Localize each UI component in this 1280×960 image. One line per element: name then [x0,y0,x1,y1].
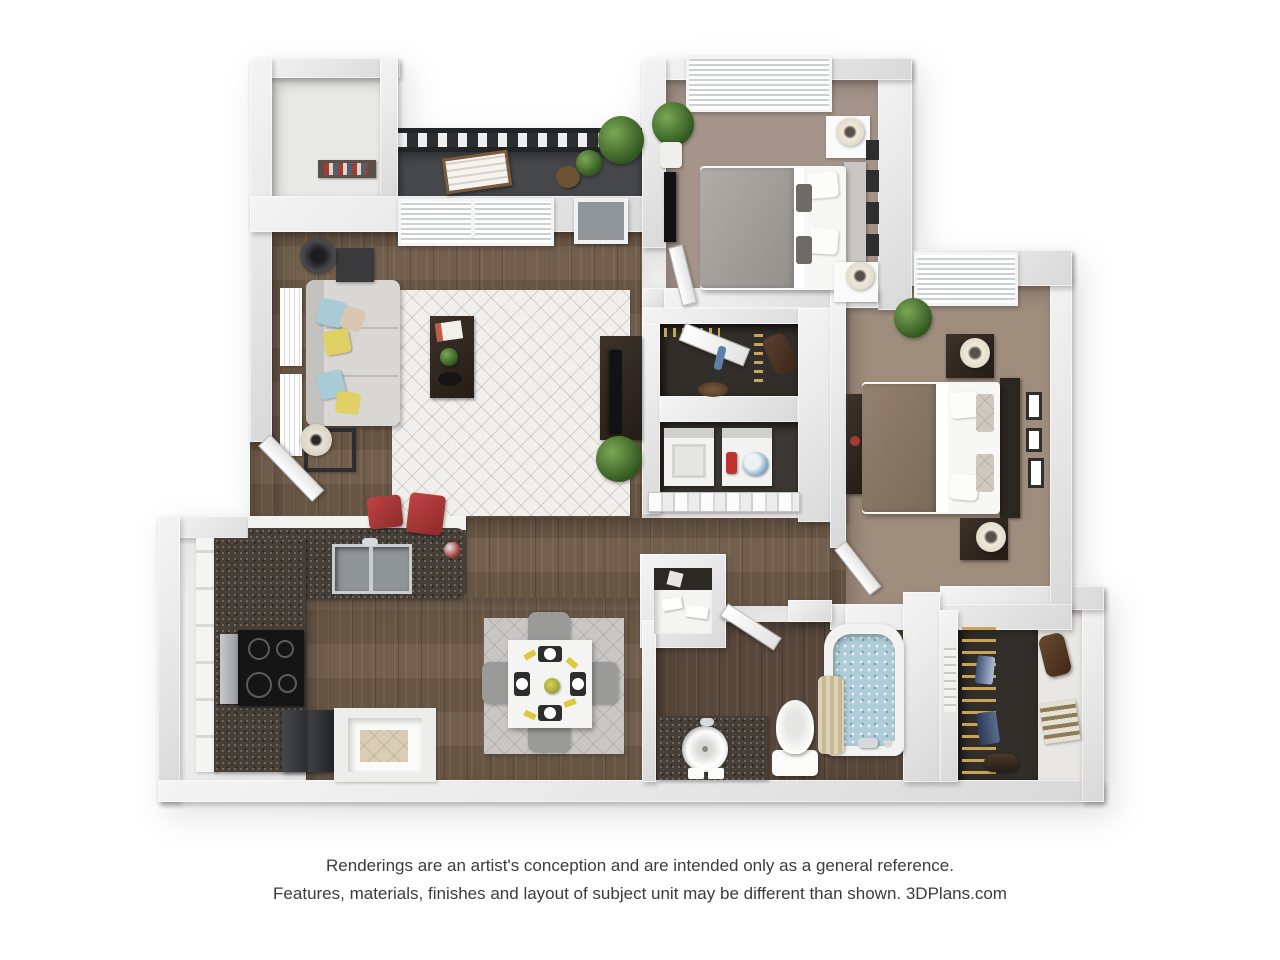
bedroom2-window [914,252,1018,306]
hallway-floor [420,518,832,606]
wall-closet-laundry-divider [660,396,798,422]
bar-stool-2 [406,492,447,536]
refrigerator [282,710,334,772]
wall-bottom [158,780,1104,802]
wall-bedroom2-right [1050,250,1072,610]
shower-curtain [818,676,844,754]
wall-bedroom2-left [830,286,846,548]
coat-closet-hat [698,382,728,397]
bedroom1-pillow-accent-1 [796,184,812,212]
wall-storage-balcony-divider [380,58,398,198]
wall-storage-top [250,58,400,78]
bathtub-faucet [858,738,878,748]
bedroom1-window [686,56,832,112]
bedroom1-tv [664,172,676,242]
vanity-towel-2 [708,768,724,779]
bedroom2-dresser-accent [850,436,860,446]
walkin-shoe-rack [1039,700,1080,745]
bedroom2-sheet-fold [936,384,948,512]
bath-niche-shelf-top [654,568,712,590]
living-room-window [398,198,554,246]
bedroom1-art-frames [866,140,879,256]
plate-right [572,678,584,690]
bedroom2-pillow-white-1 [949,391,979,419]
side-table-top [336,248,374,282]
bedroom1-pillow-accent-2 [796,236,812,264]
kitchen-sink-divider [369,546,373,592]
disclaimer-line-1: Renderings are an artist's conception an… [0,852,1280,880]
vanity-faucet [700,718,714,726]
bedroom1-duvet [700,168,796,288]
bedroom2-plant [894,298,932,338]
disclaimer: Renderings are an artist's conception an… [0,852,1280,908]
wall-art-panel-1 [280,288,302,366]
stove-burner-1 [248,638,270,660]
wall-coat-closet-left [642,324,660,514]
floorplan-3d [0,0,1280,960]
tv-living [610,350,622,434]
bedroom2-duvet [862,384,938,512]
balcony-side-table [556,166,580,188]
bedroom2-lamp-bottom [976,522,1006,552]
floorplan-page: Renderings are an artist's conception an… [0,0,1280,960]
bedroom1-plant-pot [660,142,682,168]
balcony-door [574,198,628,244]
toilet-bowl [776,700,814,754]
walkin-wire-shelf [944,648,956,712]
pantry-rug [360,730,408,762]
detergent-bottle [726,452,737,474]
living-room-window-mullion [471,200,475,238]
wall-bedroom1-right [878,58,912,310]
bedroom2-art-frame-3 [1028,458,1044,488]
bedroom2-pillow-pattern-2 [976,454,994,492]
sofa-pillow-yellow-1 [322,328,352,356]
bedroom1-plant [652,102,694,146]
bedroom2-art-frame-2 [1026,428,1042,452]
laundry-bifold-doors [648,492,800,512]
bedroom1-lamp-top [836,118,864,146]
oven-door [220,634,238,704]
wall-left-upper [250,58,272,442]
stove-burner-2 [276,640,294,658]
wall-kitchen-left [158,516,180,802]
disclaimer-line-2: Features, materials, finishes and layout… [0,880,1280,908]
walkin-duffel [984,754,1018,772]
bedroom1-lamp-bottom [846,262,874,290]
bar-stool-1 [366,494,403,529]
storage-room-floor [272,78,380,196]
wall-bath-left [642,620,656,782]
vanity-sink-drain [702,746,708,752]
kitchen-faucet [362,538,378,546]
stove-cooktop [238,630,304,706]
coffee-table-plant [440,348,458,366]
dining-centerpiece [544,678,560,694]
sofa-pillow-yellow-2 [335,390,362,415]
coffee-table-tray [438,372,462,386]
dining-chair-bottom [528,724,570,752]
walkin-hanger-rod [962,618,996,774]
storage-books [324,163,368,175]
stove-burner-4 [278,674,297,693]
walkin-clothes-navy [976,711,1000,745]
floor-lamp-cream [300,424,332,456]
dryer-control-panel [722,428,772,438]
laundry-basket [742,452,768,476]
balcony-plant-small [576,150,602,176]
stove-burner-3 [246,672,272,698]
wall-bath-top-east [788,600,832,622]
counter-kettle [444,542,460,558]
floor-lamp-dark [300,238,336,274]
plate-left [516,678,528,690]
balcony-plant [598,116,644,164]
plate-bottom [544,707,556,719]
bedroom2-art-frame-1 [1026,392,1042,420]
living-room-rug [392,290,630,516]
coffee-table-magazine [435,320,463,341]
coat-closet-hangers-right [754,330,763,382]
washer-control-panel [664,428,714,438]
washer-door [672,444,706,478]
wall-bedroom1-west-stub [642,288,666,308]
bathtub-handle [884,740,892,748]
wall-art-panel-2 [280,374,302,456]
plate-top [544,648,556,660]
wall-walkin-right [1082,586,1104,802]
living-plant [596,436,642,482]
dining-chair-top [528,612,570,642]
vanity-towel-1 [688,768,704,779]
bedroom2-pillow-pattern-1 [976,394,994,432]
dining-chair-right [590,662,618,704]
bedroom2-pillow-white-2 [949,473,979,501]
bedroom2-headboard [1000,378,1020,518]
bedroom2-lamp-top [960,338,990,368]
walkin-clothes-blue [975,655,996,685]
wall-bath-walkin-divider [903,592,940,782]
